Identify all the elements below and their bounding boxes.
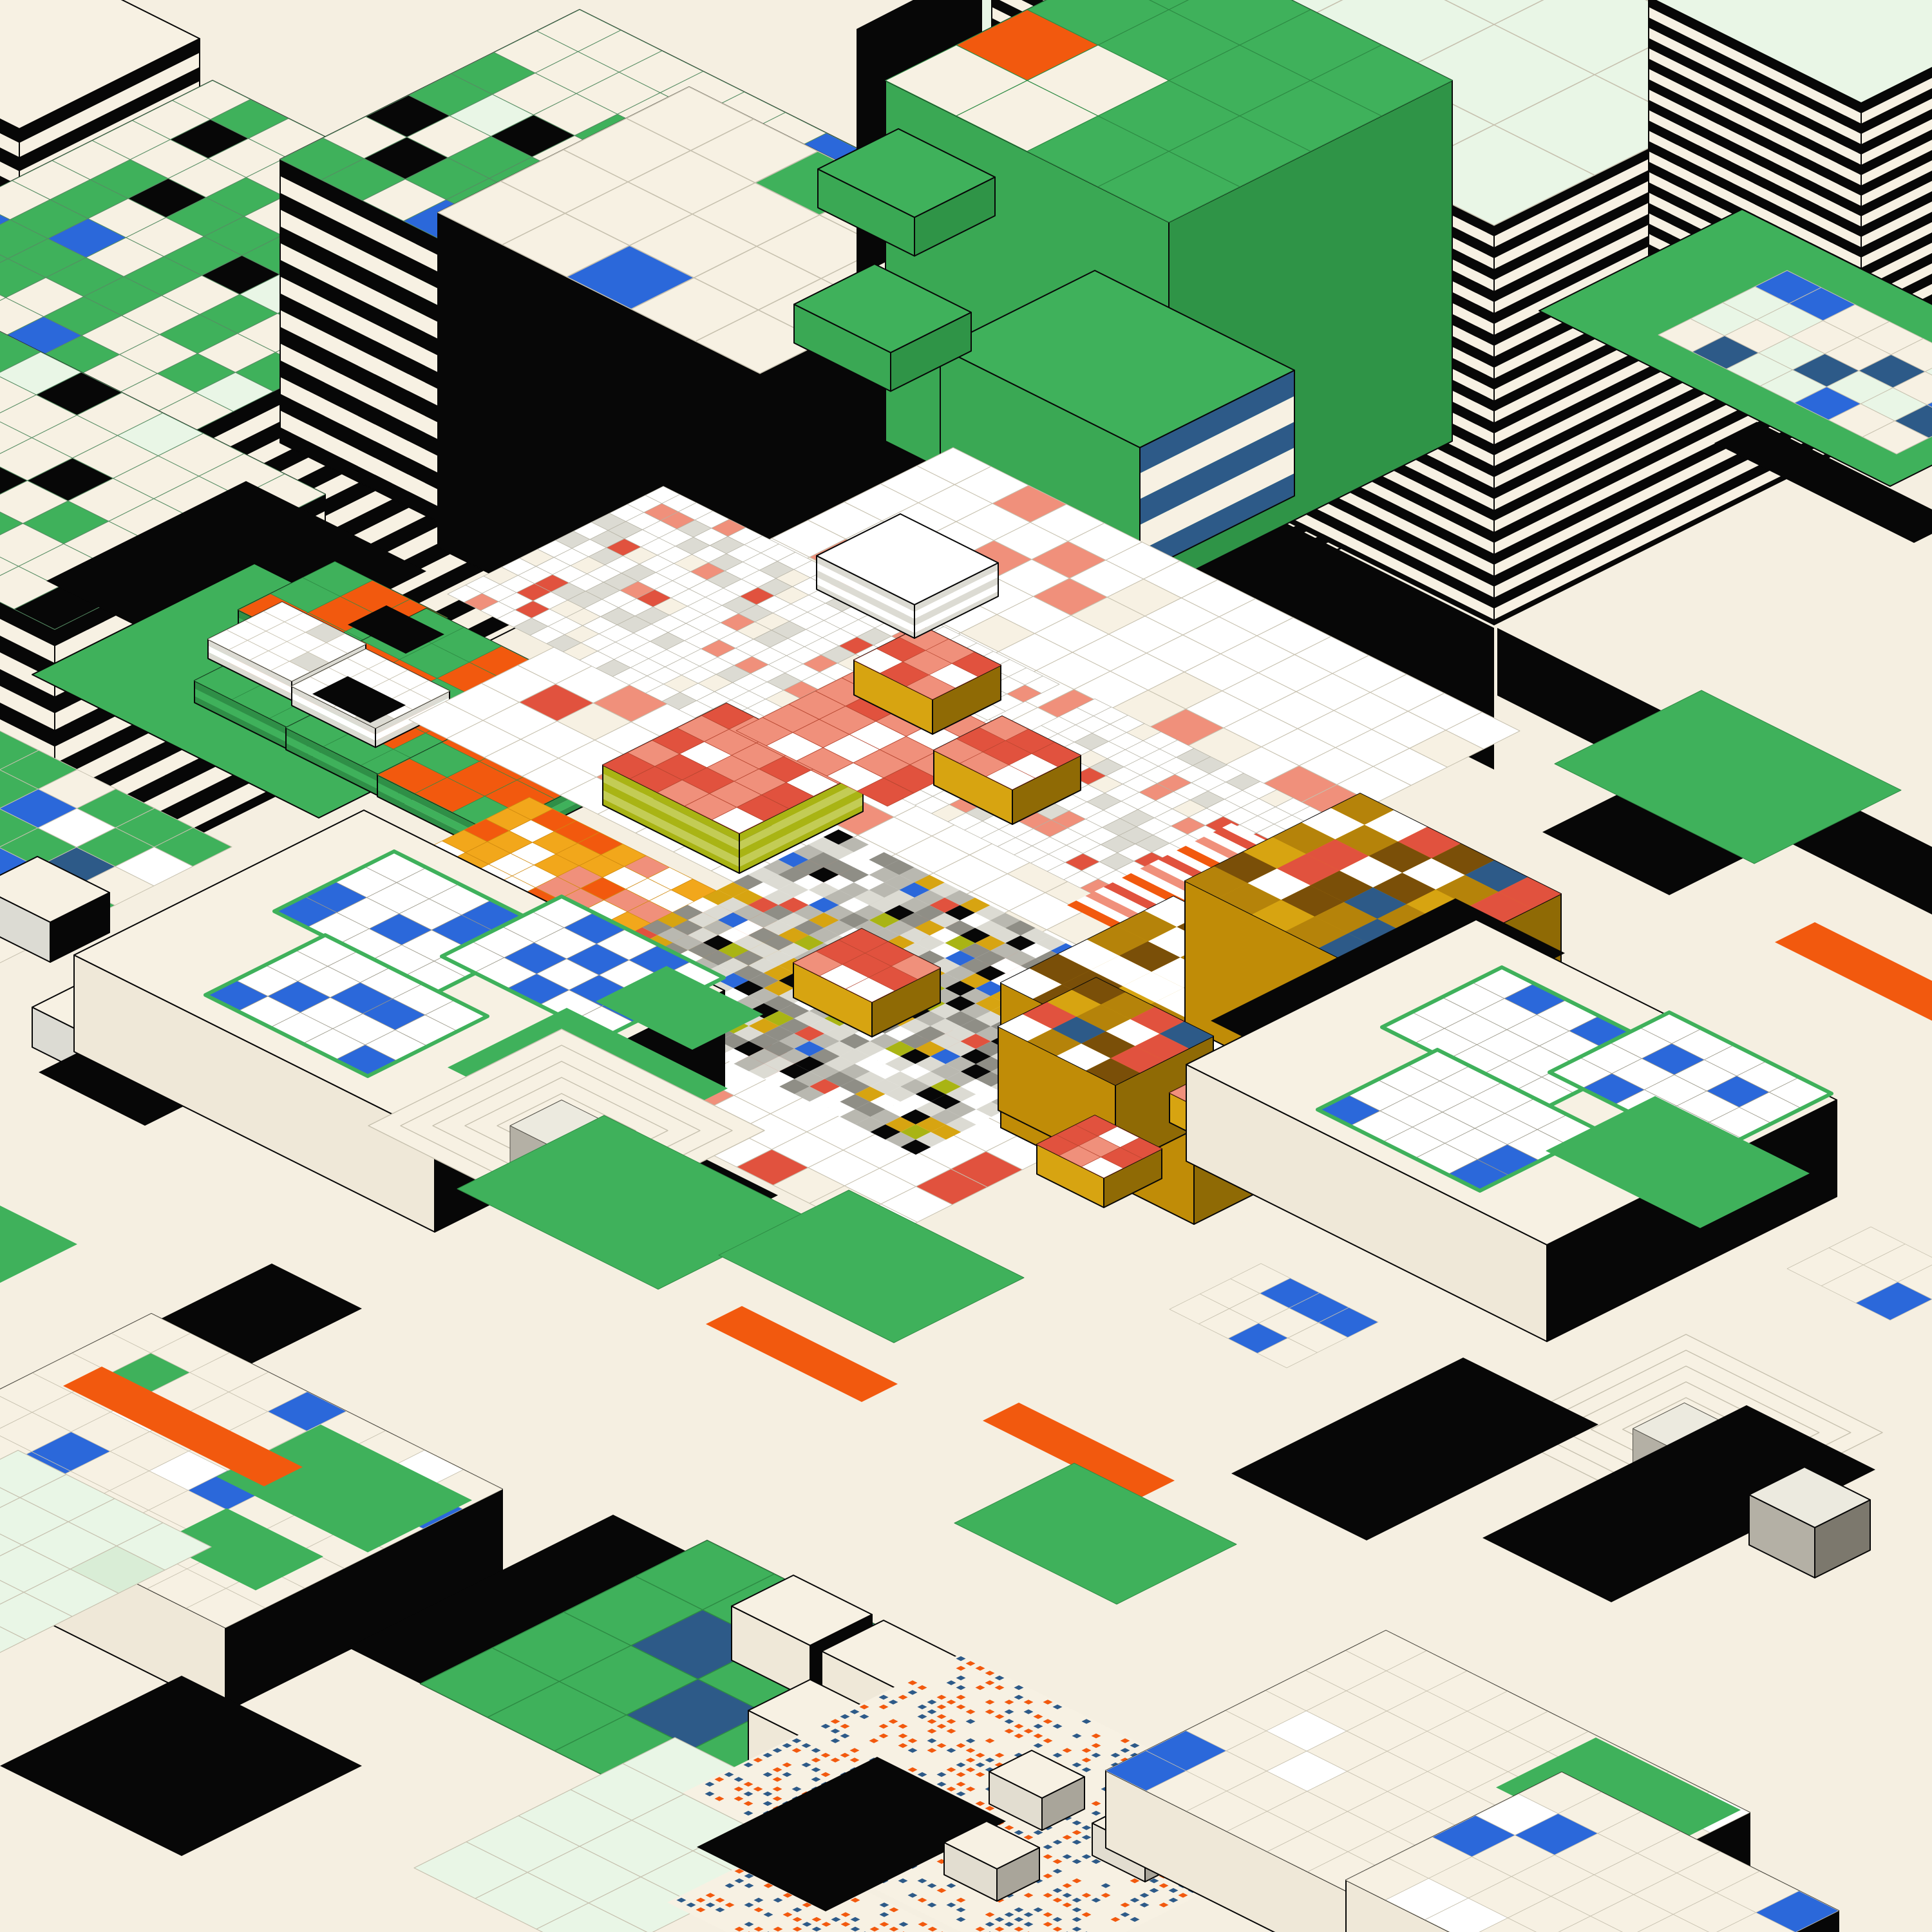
generative-isometric-city <box>0 0 1932 1932</box>
city-scene-svg <box>0 0 1932 1932</box>
